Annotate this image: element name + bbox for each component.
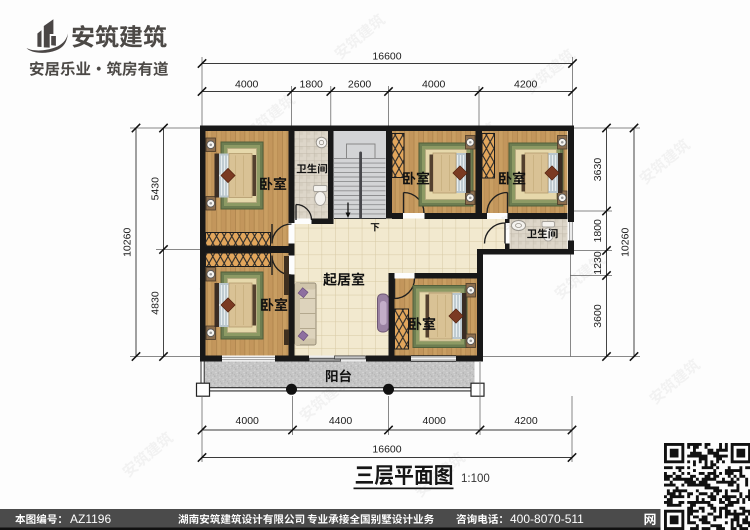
- svg-text:4200: 4200: [514, 415, 538, 427]
- svg-text:10260: 10260: [122, 228, 134, 257]
- svg-text:AZ1196: AZ1196: [70, 512, 111, 526]
- svg-text:4830: 4830: [150, 291, 162, 315]
- svg-text:3630: 3630: [592, 158, 604, 182]
- svg-text:4200: 4200: [514, 79, 538, 91]
- svg-text:1800: 1800: [300, 79, 324, 91]
- svg-text:4000: 4000: [236, 415, 260, 427]
- svg-text:10260: 10260: [620, 228, 632, 257]
- svg-text:4000: 4000: [423, 415, 447, 427]
- svg-text:2600: 2600: [348, 79, 372, 91]
- svg-text:4000: 4000: [235, 79, 259, 91]
- svg-text:3600: 3600: [592, 304, 604, 328]
- svg-text:16600: 16600: [372, 444, 401, 456]
- svg-text:5430: 5430: [150, 177, 162, 201]
- svg-text:1:100: 1:100: [461, 473, 490, 485]
- svg-text:4000: 4000: [422, 79, 446, 91]
- svg-text:1230: 1230: [592, 251, 604, 275]
- svg-text:16600: 16600: [372, 51, 401, 63]
- svg-text:1800: 1800: [592, 219, 604, 243]
- svg-text:4400: 4400: [329, 415, 353, 427]
- svg-text:400-8070-511: 400-8070-511: [510, 512, 584, 526]
